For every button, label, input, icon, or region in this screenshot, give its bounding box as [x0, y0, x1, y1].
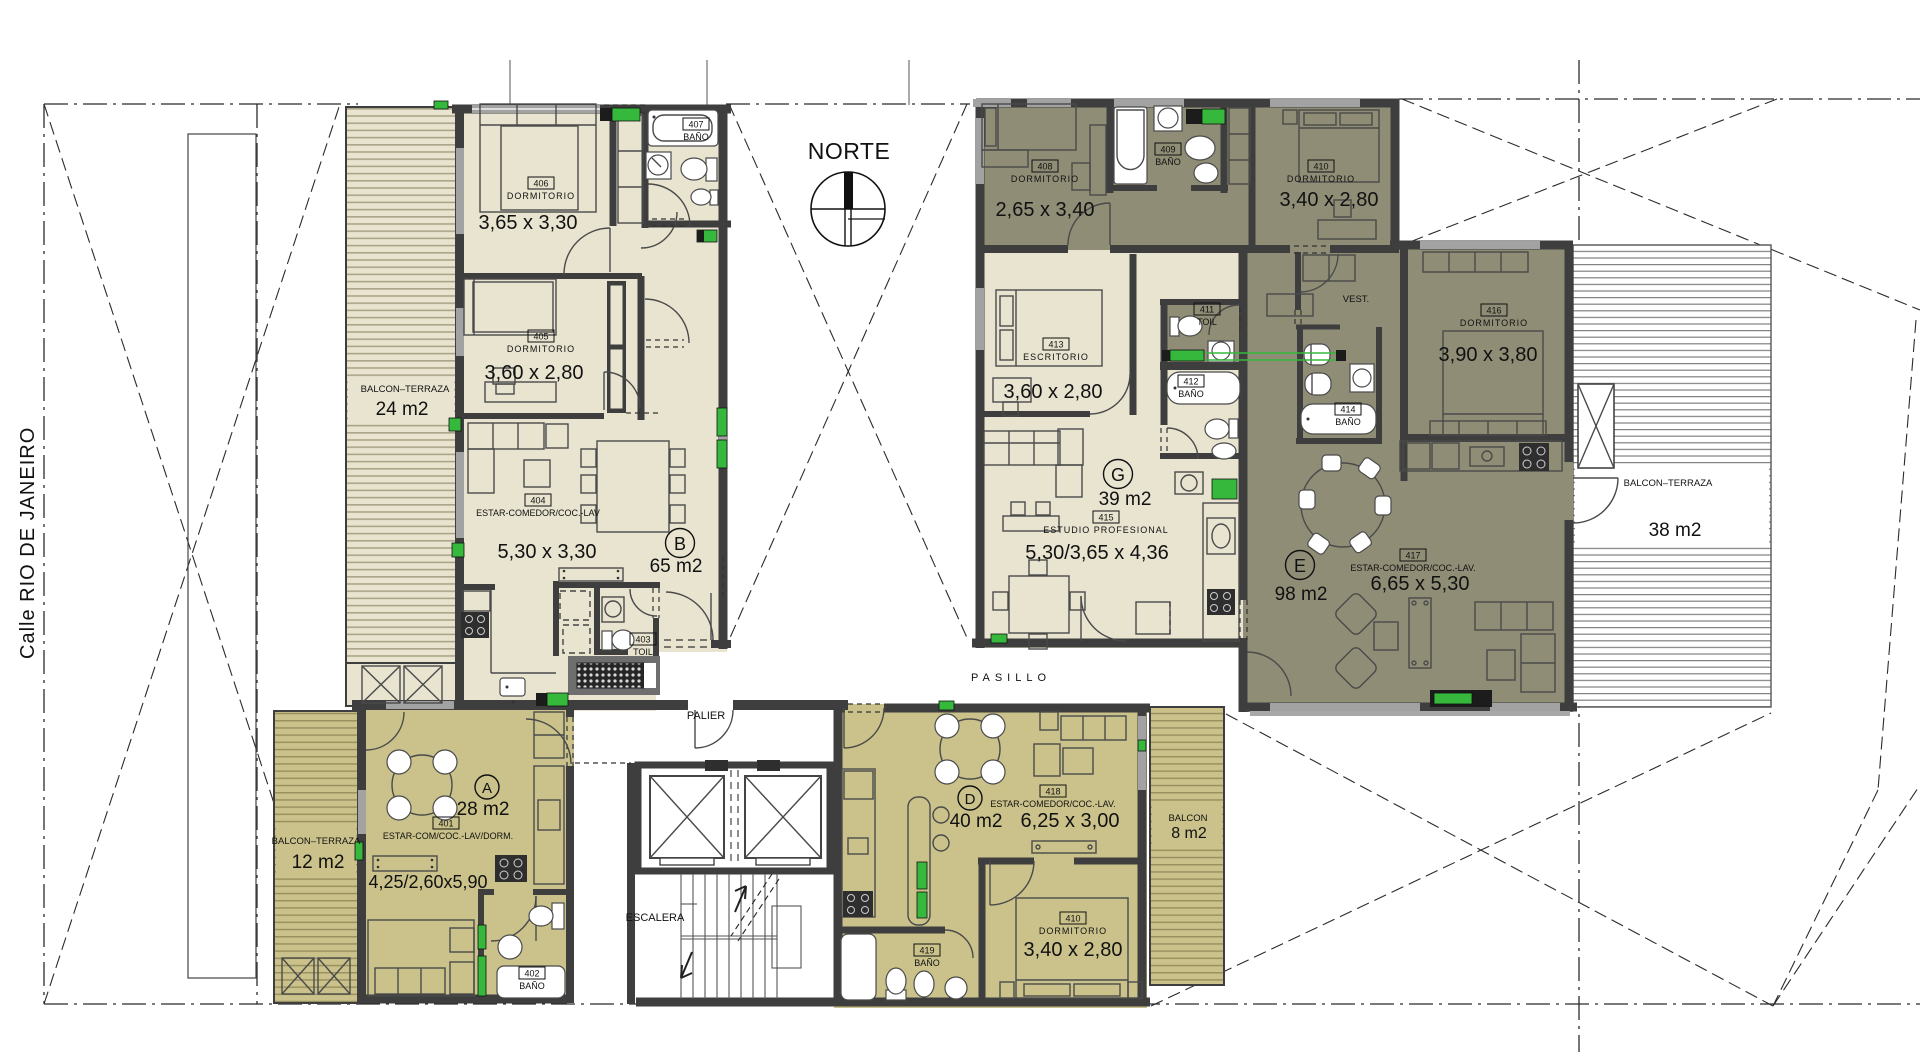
svg-text:TOIL: TOIL	[633, 647, 653, 657]
svg-text:419: 419	[919, 946, 934, 956]
svg-text:BAÑO: BAÑO	[1155, 157, 1181, 167]
svg-text:6,65 x 5,30: 6,65 x 5,30	[1371, 573, 1470, 595]
svg-text:ESTAR-COMEDOR/COC.-LAV.: ESTAR-COMEDOR/COC.-LAV.	[990, 799, 1115, 809]
svg-text:BAÑO: BAÑO	[914, 958, 940, 968]
svg-text:40 m2: 40 m2	[950, 811, 1003, 832]
svg-text:415: 415	[1098, 513, 1113, 523]
svg-text:D: D	[965, 791, 976, 808]
svg-text:3,90 x 3,80: 3,90 x 3,80	[1439, 344, 1538, 366]
svg-text:28 m2: 28 m2	[457, 799, 510, 820]
svg-text:24 m2: 24 m2	[376, 399, 429, 420]
svg-text:B: B	[674, 534, 686, 554]
svg-text:408: 408	[1037, 162, 1052, 172]
svg-text:412: 412	[1183, 377, 1198, 387]
svg-text:ESTAR-COMEDOR/COC.-LAV: ESTAR-COMEDOR/COC.-LAV	[476, 508, 600, 518]
svg-text:405: 405	[533, 332, 548, 342]
svg-text:DORMITORIO: DORMITORIO	[1011, 174, 1079, 184]
svg-text:403: 403	[635, 635, 650, 645]
svg-text:65 m2: 65 m2	[650, 556, 703, 577]
svg-text:406: 406	[533, 179, 548, 189]
svg-text:ESTAR-COM/COC.-LAV/DORM.: ESTAR-COM/COC.-LAV/DORM.	[383, 831, 513, 841]
svg-text:410: 410	[1065, 914, 1080, 924]
svg-text:DORMITORIO: DORMITORIO	[1039, 926, 1107, 936]
svg-text:416: 416	[1486, 306, 1501, 316]
svg-text:E: E	[1294, 556, 1306, 576]
svg-text:DORMITORIO: DORMITORIO	[1287, 174, 1355, 184]
svg-text:3,60 x 2,80: 3,60 x 2,80	[485, 362, 584, 384]
svg-text:ESTUDIO PROFESIONAL: ESTUDIO PROFESIONAL	[1043, 525, 1169, 535]
svg-text:PASILLO: PASILLO	[971, 672, 1051, 684]
svg-text:5,30/3,65 x 4,36: 5,30/3,65 x 4,36	[1025, 542, 1168, 564]
svg-text:410: 410	[1313, 162, 1328, 172]
svg-text:404: 404	[530, 496, 545, 506]
svg-text:PALIER: PALIER	[687, 710, 725, 722]
svg-text:ESCRITORIO: ESCRITORIO	[1023, 352, 1089, 362]
svg-text:98 m2: 98 m2	[1275, 584, 1328, 605]
svg-text:413: 413	[1048, 340, 1063, 350]
svg-text:3,60 x 2,80: 3,60 x 2,80	[1004, 381, 1103, 403]
svg-text:5,30 x 3,30: 5,30 x 3,30	[498, 541, 597, 563]
svg-text:3,65 x 3,30: 3,65 x 3,30	[479, 212, 578, 234]
svg-text:6,25 x 3,00: 6,25 x 3,00	[1021, 810, 1120, 832]
svg-text:4,25/2,60x5,90: 4,25/2,60x5,90	[368, 872, 487, 892]
svg-text:407: 407	[688, 120, 703, 130]
svg-text:414: 414	[1340, 405, 1355, 415]
svg-text:VEST.: VEST.	[1343, 294, 1369, 305]
svg-text:BAÑO: BAÑO	[1335, 417, 1361, 427]
svg-text:417: 417	[1405, 551, 1420, 561]
svg-text:DORMITORIO: DORMITORIO	[1460, 318, 1528, 328]
svg-text:BALCON–TERRAZA: BALCON–TERRAZA	[361, 384, 450, 395]
svg-text:BALCON–TERRAZA: BALCON–TERRAZA	[272, 836, 361, 847]
svg-text:NORTE: NORTE	[808, 138, 891, 164]
svg-text:BALCON–TERRAZA: BALCON–TERRAZA	[1624, 478, 1713, 489]
svg-text:39 m2: 39 m2	[1099, 489, 1152, 510]
svg-text:401: 401	[438, 819, 453, 829]
svg-text:TOIL: TOIL	[1197, 317, 1217, 327]
svg-text:BALCON: BALCON	[1168, 813, 1207, 824]
svg-text:409: 409	[1160, 145, 1175, 155]
svg-text:12 m2: 12 m2	[292, 852, 345, 873]
svg-text:G: G	[1111, 465, 1125, 485]
svg-text:DORMITORIO: DORMITORIO	[507, 191, 575, 201]
svg-text:8 m2: 8 m2	[1171, 825, 1207, 842]
svg-text:BAÑO: BAÑO	[683, 132, 709, 142]
svg-text:Calle RIO DE JANEIRO: Calle RIO DE JANEIRO	[17, 427, 39, 659]
svg-text:3,40 x 2,80: 3,40 x 2,80	[1024, 939, 1123, 961]
svg-text:A: A	[482, 780, 492, 797]
svg-text:2,65 x 3,40: 2,65 x 3,40	[996, 199, 1095, 221]
svg-text:BAÑO: BAÑO	[1178, 389, 1204, 399]
svg-text:418: 418	[1045, 787, 1060, 797]
svg-text:402: 402	[524, 969, 539, 979]
svg-text:38 m2: 38 m2	[1649, 520, 1702, 541]
svg-text:DORMITORIO: DORMITORIO	[507, 344, 575, 354]
svg-text:411: 411	[1200, 305, 1214, 315]
svg-text:BAÑO: BAÑO	[519, 981, 545, 991]
svg-text:ESTAR-COMEDOR/COC.-LAV.: ESTAR-COMEDOR/COC.-LAV.	[1350, 563, 1475, 573]
svg-text:3,40 x 2,80: 3,40 x 2,80	[1280, 189, 1379, 211]
svg-text:ESCALERA: ESCALERA	[626, 912, 685, 924]
